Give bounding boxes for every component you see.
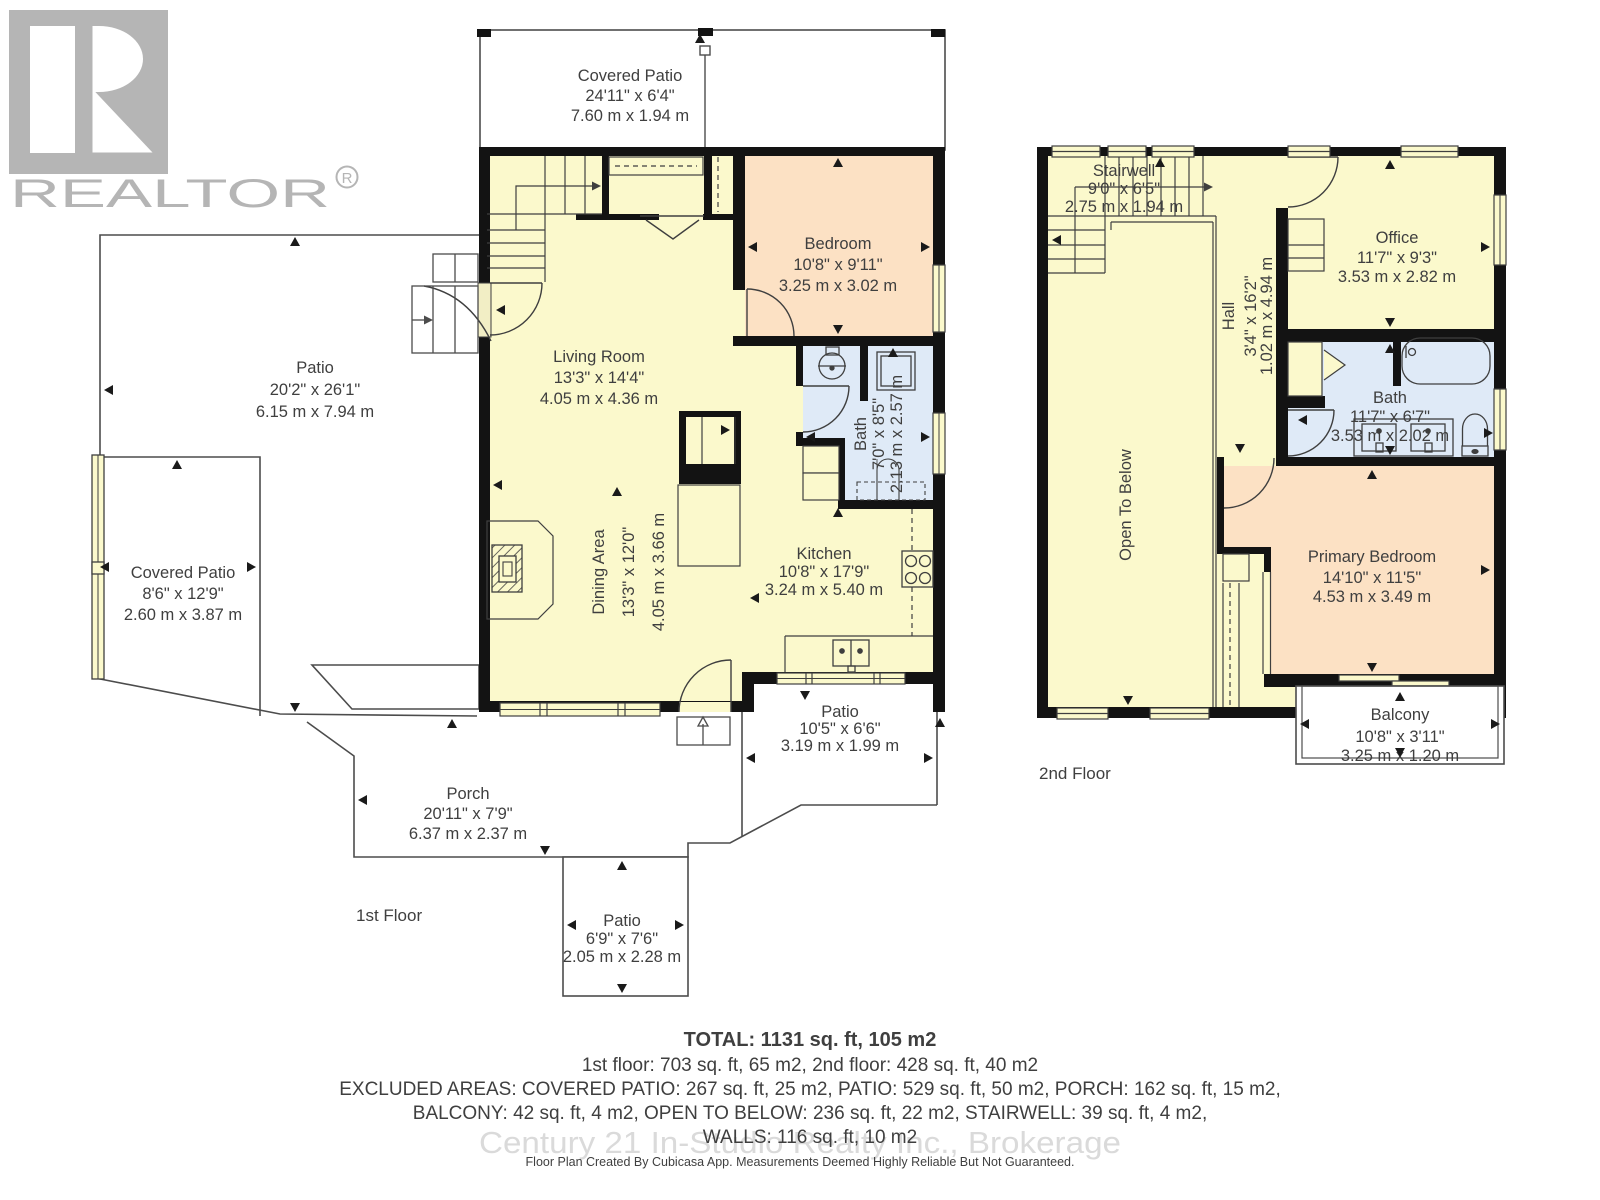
svg-text:3.25 m x 3.02 m: 3.25 m x 3.02 m bbox=[779, 277, 897, 295]
svg-text:11'7" x 9'3": 11'7" x 9'3" bbox=[1357, 249, 1437, 267]
svg-text:13'3" x 14'4": 13'3" x 14'4" bbox=[554, 369, 645, 387]
svg-text:Stairwell: Stairwell bbox=[1093, 162, 1155, 180]
svg-text:10'8" x 9'11": 10'8" x 9'11" bbox=[793, 256, 882, 274]
svg-text:1st floor: 703 sq. ft, 65 m2,: 1st floor: 703 sq. ft, 65 m2, 2nd floor:… bbox=[582, 1055, 1038, 1076]
svg-text:3.19 m x 1.99 m: 3.19 m x 1.99 m bbox=[781, 737, 899, 755]
svg-text:10'8" x 3'11": 10'8" x 3'11" bbox=[1355, 728, 1444, 746]
svg-text:20'2" x 26'1": 20'2" x 26'1" bbox=[270, 381, 361, 399]
svg-text:4.05 m x 3.66 m: 4.05 m x 3.66 m bbox=[650, 513, 668, 631]
svg-text:2.05 m x 2.28 m: 2.05 m x 2.28 m bbox=[563, 948, 681, 966]
svg-text:Covered Patio: Covered Patio bbox=[578, 67, 683, 85]
svg-text:Covered Patio: Covered Patio bbox=[131, 564, 236, 582]
svg-text:TOTAL: 1131 sq. ft, 105 m2: TOTAL: 1131 sq. ft, 105 m2 bbox=[684, 1029, 937, 1051]
svg-text:Primary Bedroom: Primary Bedroom bbox=[1308, 548, 1436, 566]
svg-text:Bath: Bath bbox=[852, 417, 870, 451]
svg-text:1st Floor: 1st Floor bbox=[356, 906, 422, 925]
svg-text:6.15 m x 7.94 m: 6.15 m x 7.94 m bbox=[256, 403, 374, 421]
svg-text:Hall: Hall bbox=[1220, 302, 1238, 330]
svg-text:3.24 m x 5.40 m: 3.24 m x 5.40 m bbox=[765, 581, 883, 599]
svg-text:Patio: Patio bbox=[603, 912, 641, 930]
svg-text:Dining Area: Dining Area bbox=[590, 529, 608, 615]
svg-text:2.13 m x 2.57 m: 2.13 m x 2.57 m bbox=[888, 375, 906, 493]
svg-text:6'9" x 7'6": 6'9" x 7'6" bbox=[586, 930, 658, 948]
svg-text:7'0" x 8'5": 7'0" x 8'5" bbox=[870, 398, 888, 470]
svg-text:Balcony: Balcony bbox=[1371, 706, 1430, 724]
svg-text:20'11" x 7'9": 20'11" x 7'9" bbox=[423, 805, 512, 823]
svg-text:2nd Floor: 2nd Floor bbox=[1039, 764, 1111, 783]
svg-text:10'5" x 6'6": 10'5" x 6'6" bbox=[799, 720, 880, 738]
svg-text:10'8" x 17'9": 10'8" x 17'9" bbox=[779, 563, 870, 581]
svg-text:2.60 m x 3.87 m: 2.60 m x 3.87 m bbox=[124, 606, 242, 624]
svg-text:4.53 m x 3.49 m: 4.53 m x 3.49 m bbox=[1313, 588, 1431, 606]
svg-text:6.37 m x 2.37 m: 6.37 m x 2.37 m bbox=[409, 825, 527, 843]
svg-text:4.05 m x 4.36 m: 4.05 m x 4.36 m bbox=[540, 390, 658, 408]
svg-text:13'3" x 12'0": 13'3" x 12'0" bbox=[620, 527, 638, 618]
svg-text:Office: Office bbox=[1376, 229, 1419, 247]
svg-text:BALCONY: 42 sq. ft, 4 m2, OPEN: BALCONY: 42 sq. ft, 4 m2, OPEN TO BELOW:… bbox=[413, 1103, 1207, 1124]
svg-text:R: R bbox=[342, 170, 353, 187]
svg-text:2.75 m x 1.94 m: 2.75 m x 1.94 m bbox=[1065, 198, 1183, 216]
svg-text:9'0" x 6'5": 9'0" x 6'5" bbox=[1088, 180, 1160, 198]
svg-text:Living Room: Living Room bbox=[553, 348, 645, 366]
svg-text:Bath: Bath bbox=[1373, 389, 1407, 407]
svg-text:Kitchen: Kitchen bbox=[796, 545, 851, 563]
svg-text:EXCLUDED AREAS: COVERED PATIO:: EXCLUDED AREAS: COVERED PATIO: 267 sq. f… bbox=[339, 1079, 1281, 1100]
svg-text:8'6" x 12'9": 8'6" x 12'9" bbox=[142, 585, 223, 603]
svg-text:REALTOR: REALTOR bbox=[10, 172, 330, 216]
svg-text:Patio: Patio bbox=[296, 359, 334, 377]
svg-text:Patio: Patio bbox=[821, 703, 859, 721]
svg-text:Porch: Porch bbox=[446, 785, 489, 803]
svg-text:24'11" x 6'4": 24'11" x 6'4" bbox=[585, 87, 674, 105]
svg-text:7.60 m x 1.94 m: 7.60 m x 1.94 m bbox=[571, 107, 689, 125]
svg-text:Open To Below: Open To Below bbox=[1117, 449, 1135, 561]
svg-text:Bedroom: Bedroom bbox=[805, 235, 872, 253]
svg-text:WALLS: 116 sq. ft, 10 m2: WALLS: 116 sq. ft, 10 m2 bbox=[703, 1127, 917, 1148]
svg-text:3.53 m x 2.02 m: 3.53 m x 2.02 m bbox=[1331, 427, 1449, 445]
svg-text:1.02 m x 4.94 m: 1.02 m x 4.94 m bbox=[1258, 257, 1276, 375]
svg-text:Floor Plan Created By Cubicasa: Floor Plan Created By Cubicasa App. Meas… bbox=[526, 1155, 1075, 1169]
svg-text:14'10" x 11'5": 14'10" x 11'5" bbox=[1323, 569, 1422, 587]
svg-text:11'7" x 6'7": 11'7" x 6'7" bbox=[1350, 408, 1430, 426]
svg-text:3.53 m x 2.82 m: 3.53 m x 2.82 m bbox=[1338, 268, 1456, 286]
